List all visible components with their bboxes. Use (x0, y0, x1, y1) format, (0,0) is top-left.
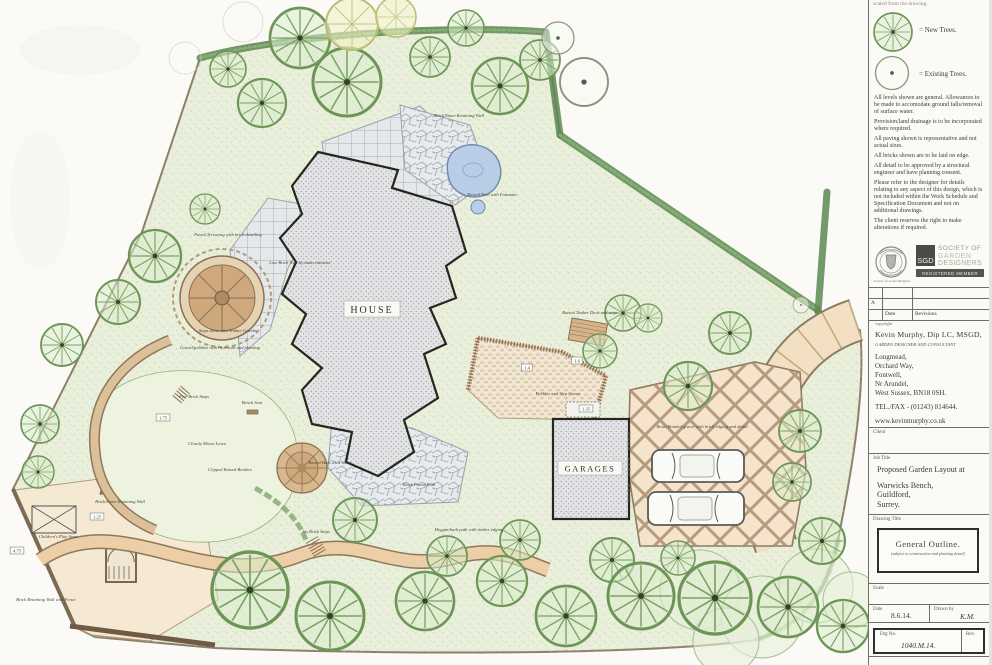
new-tree (817, 600, 868, 652)
new-tree (22, 456, 54, 488)
new-tree (41, 324, 83, 366)
designer-address: Longmead,Orchard Way,Fontwell,Nr Arundel… (869, 351, 989, 400)
new-tree (634, 304, 662, 332)
new-tree (448, 10, 484, 46)
new-tree (536, 586, 596, 646)
new-tree (190, 194, 220, 224)
plan-annotation: Steps down into Timber Gazebo (199, 328, 258, 333)
existing-tree-symbol (873, 54, 913, 94)
circular-steps (277, 443, 327, 493)
sgd-abbr: SGD (916, 245, 935, 266)
note-paragraph: All paving shown is representative and n… (874, 136, 984, 150)
rev-label: Rev. (962, 630, 983, 639)
plan-annotation: Brick/Stone Retaining Wall (434, 113, 485, 118)
new-tree (396, 572, 454, 630)
plan-annotation: Children's Play Area (39, 534, 78, 539)
sgd-logo-block: Society of Garden Designers SGD SOCIETY … (869, 243, 989, 287)
new-tree (679, 562, 751, 634)
driveway (628, 362, 806, 546)
address-line: Nr Arundel, (875, 380, 983, 389)
new-tree (21, 405, 59, 443)
new-tree (661, 541, 695, 575)
new-tree (758, 577, 818, 637)
title-block-top-note: scaled from the drawing. (869, 0, 989, 8)
new-tree (500, 520, 540, 560)
note-paragraph: All detail to be approved by a structura… (874, 163, 984, 177)
plan-annotation: Gravel/pebbles with rockwork and plantin… (180, 345, 261, 350)
new-tree (664, 362, 712, 410)
level-marker: 1.75 (159, 416, 168, 421)
copyright-label: copyright (869, 319, 989, 328)
new-tree (326, 0, 378, 50)
revisions-table: A Date Revisions (869, 287, 989, 317)
new-tree (779, 410, 821, 452)
plan-annotation: Raised Timber Deck and steps (561, 310, 618, 315)
address-line: Fontwell, (875, 371, 983, 380)
designer-telephone: TEL./FAX - (01243) 814644. (869, 401, 989, 413)
drawing-title-box: General Outline. (subject to constructio… (877, 528, 979, 573)
note-paragraph: The client reserves the right to make al… (874, 218, 984, 232)
existing-tree (560, 58, 608, 106)
legend-existing-trees-label: = Existing Trees. (919, 70, 967, 78)
sgd-line2: GARDEN (938, 253, 982, 261)
sgd-crest-caption: Society of Garden Designers (870, 279, 914, 283)
address-line: West Sussex, BN18 0SH. (875, 389, 983, 398)
plan-annotation: Pebbles and Step Stones (535, 391, 581, 396)
drawing-title: General Outline. (879, 539, 977, 549)
plan-annotation: Low Brick Wall by main entrance (268, 260, 330, 265)
job-title-section: Job Title Proposed Garden Layout atWarwi… (869, 453, 989, 514)
new-tree (296, 582, 364, 650)
garden-plan-sheet: HOUSE GARAGES Brick/Stone Retaining Wall… (0, 0, 992, 665)
job-title-line: Proposed Garden Layout at (877, 465, 981, 475)
new-tree (799, 518, 845, 564)
existing-tree (542, 22, 574, 54)
plan-annotation: Brick Retaining Wall with Fence (16, 597, 76, 602)
drg-no-box: Drg No. 1040.M.14. Rev. (873, 628, 985, 654)
plan-annotation: Hoggin/bark path with timber edging (434, 527, 504, 532)
sgd-crest-icon (872, 244, 910, 280)
scale-section: Scale (869, 583, 989, 604)
note-paragraph: Please refer to the designer for details… (874, 180, 984, 214)
new-tree (773, 463, 811, 501)
plan-annotation: Paved Terracing with brick detailing (193, 232, 262, 237)
drg-no-label: Drg No. (876, 630, 900, 639)
new-tree (709, 312, 751, 354)
new-tree (410, 37, 450, 77)
new-tree (238, 79, 286, 127)
legend-new-trees-label: = New Trees. (919, 26, 957, 34)
address-line: Orchard Way, (875, 362, 983, 371)
drg-no-value: 1040.M.14. (901, 641, 935, 650)
plan-annotation: Raised Beds with Water (307, 460, 352, 465)
job-title-text: Proposed Garden Layout atWarwicks Bench,… (869, 463, 989, 511)
title-block: scaled from the drawing. = New Trees. = … (868, 0, 990, 665)
plan-annotation: Brick Paved Path (403, 482, 436, 487)
date-value: 8.6.14. (891, 611, 912, 620)
plan-annotation: Bench Seat (242, 400, 263, 405)
new-tree (212, 552, 288, 628)
car (648, 492, 744, 525)
new-tree (96, 280, 140, 324)
level-marker: 4.75 (13, 549, 22, 554)
designer-role: GARDEN DESIGNER AND CONSULTANT (869, 340, 989, 349)
new-tree (333, 498, 377, 542)
level-marker: 1.6 (574, 359, 580, 364)
new-tree (129, 230, 181, 282)
level-marker: 1.35 (582, 407, 591, 412)
designer-website: www.kevinmurphy.co.uk (869, 415, 989, 427)
new-tree (376, 0, 416, 37)
house-label: HOUSE (350, 305, 393, 316)
existing-tree (793, 297, 809, 313)
new-tree (427, 536, 467, 576)
plan-annotation: Brick/Stone Retaining Wall (95, 499, 146, 504)
note-paragraph: All levels shown are general. Allowances… (874, 95, 984, 115)
new-tree (210, 51, 246, 87)
new-tree (583, 334, 617, 368)
drawing-subtitle: (subject to construction and planting de… (879, 551, 977, 556)
level-marker: 1.4 (524, 366, 530, 371)
scale-label: Scale (869, 584, 989, 593)
new-tree (477, 556, 527, 606)
plan-drawing: HOUSE GARAGES Brick/Stone Retaining Wall… (0, 0, 868, 665)
new-tree (472, 58, 528, 114)
new-tree (608, 563, 674, 629)
sgd-registered-member: REGISTERED MEMBER (916, 269, 984, 277)
revision-marker: A (869, 299, 883, 309)
sgd-line1: SOCIETY OF (938, 245, 982, 253)
drawing-title-section: Drawing Title General Outline. (subject … (869, 514, 989, 583)
date-section: Date 8.6.14. Drawn by K.M. (869, 604, 989, 622)
note-paragraph: Provision/land drainage is to be incorpo… (874, 119, 984, 133)
plan-annotation: Closely Mown Lawn (188, 441, 226, 446)
garages-label: GARAGES (565, 464, 616, 474)
plan-annotation: Resin Bonded gravel with brick edging an… (655, 424, 748, 429)
drg-no-section: Drg No. 1040.M.14. Rev. (869, 622, 989, 657)
new-tree-symbol (871, 10, 915, 54)
client-label: Client (869, 428, 989, 437)
garages: GARAGES (553, 402, 629, 519)
sgd-line3: DESIGNERS (938, 260, 982, 268)
legend-new-trees: = New Trees. (869, 10, 989, 54)
legend-existing-trees: = Existing Trees. (869, 54, 989, 94)
plan-annotation: Six Brick Steps (302, 529, 330, 534)
job-title-line: Warwicks Bench, (877, 481, 981, 491)
note-paragraph: All bricks shown are to be laid on edge. (874, 153, 984, 160)
plan-annotation: Raised Pool with Fountain (466, 192, 517, 197)
plan-annotation: Clipped Raised Borders (208, 467, 252, 472)
car (652, 450, 744, 482)
drawn-by-value: K.M. (960, 612, 975, 621)
plan-annotation: Five Brick Steps (178, 394, 209, 399)
drawing-title-label: Drawing Title (869, 515, 989, 524)
job-title-line: Surrey. (877, 500, 981, 510)
general-notes: All levels shown are general. Allowances… (869, 95, 989, 235)
client-section: Client (869, 427, 989, 453)
job-title-label: Job Title (869, 454, 989, 463)
job-title-line: Guildford, (877, 490, 981, 500)
address-line: Longmead, (875, 353, 983, 362)
level-marker: 1.25 (93, 515, 102, 520)
new-tree (313, 48, 381, 116)
